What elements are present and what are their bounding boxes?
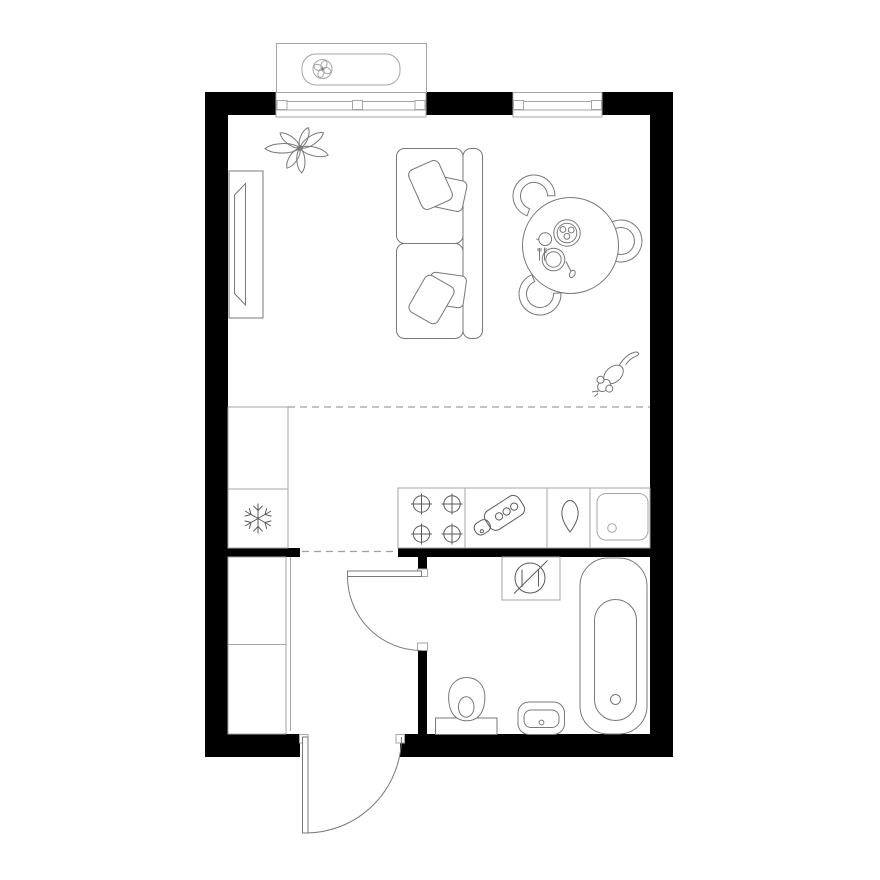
ac-unit <box>277 44 427 93</box>
washing-machine <box>502 557 560 600</box>
wardrobe-body <box>228 557 286 734</box>
wall-segment <box>418 650 427 734</box>
kitchen-sink <box>597 494 648 541</box>
mouse-nose <box>597 391 599 393</box>
tv-console <box>229 171 263 318</box>
door-swing-arc <box>348 577 422 651</box>
tv-screen <box>235 184 246 306</box>
floor-plan-canvas <box>0 0 880 880</box>
window-post <box>514 101 524 110</box>
window-post <box>353 101 363 110</box>
plant-center <box>299 147 301 149</box>
dining-table <box>523 198 619 294</box>
mouse-ear <box>606 385 613 392</box>
window-post <box>277 101 287 110</box>
washbasin <box>518 702 565 735</box>
sofa <box>397 149 483 339</box>
entrance-door <box>300 735 405 834</box>
fan-hub <box>321 68 323 70</box>
wall-segment <box>602 92 673 115</box>
wall-segment <box>426 92 513 115</box>
bathtub <box>580 558 647 734</box>
plant-leaf <box>284 146 304 171</box>
window-post <box>592 101 602 110</box>
plant <box>265 126 329 173</box>
plant-leaf <box>265 143 300 153</box>
mouse <box>592 352 639 396</box>
wall-segment <box>400 734 673 757</box>
window-frame <box>276 93 426 118</box>
door-leaf <box>348 571 422 577</box>
wall-segment <box>418 557 427 569</box>
wall-segment <box>228 548 300 557</box>
hallway-wardrobe <box>228 557 291 734</box>
mouse-tail <box>619 352 639 366</box>
window-left <box>276 93 426 118</box>
washbasin-rim <box>518 702 565 735</box>
wall-segment <box>398 548 650 557</box>
wall-segment <box>205 92 276 115</box>
wall-segment <box>205 92 228 757</box>
bathroom-door <box>348 569 428 651</box>
door-jamb <box>418 643 428 651</box>
door-leaf <box>303 737 309 833</box>
plant-leaf <box>298 129 326 152</box>
window-right <box>513 93 602 118</box>
door-swing-arc <box>306 737 402 833</box>
toilet-bowl <box>449 678 485 721</box>
toilet <box>436 678 498 735</box>
sofa-backrest <box>463 149 483 339</box>
window-post <box>415 101 425 110</box>
sink-basin <box>597 494 648 541</box>
fan-icon <box>313 60 332 79</box>
wall-segment <box>205 734 300 757</box>
plant-leaf <box>296 148 306 174</box>
door-jamb <box>396 735 405 744</box>
mouse-ear <box>597 376 604 383</box>
floor-plan-svg <box>0 0 880 880</box>
window-frame <box>513 93 602 118</box>
wall-segment <box>650 92 673 757</box>
